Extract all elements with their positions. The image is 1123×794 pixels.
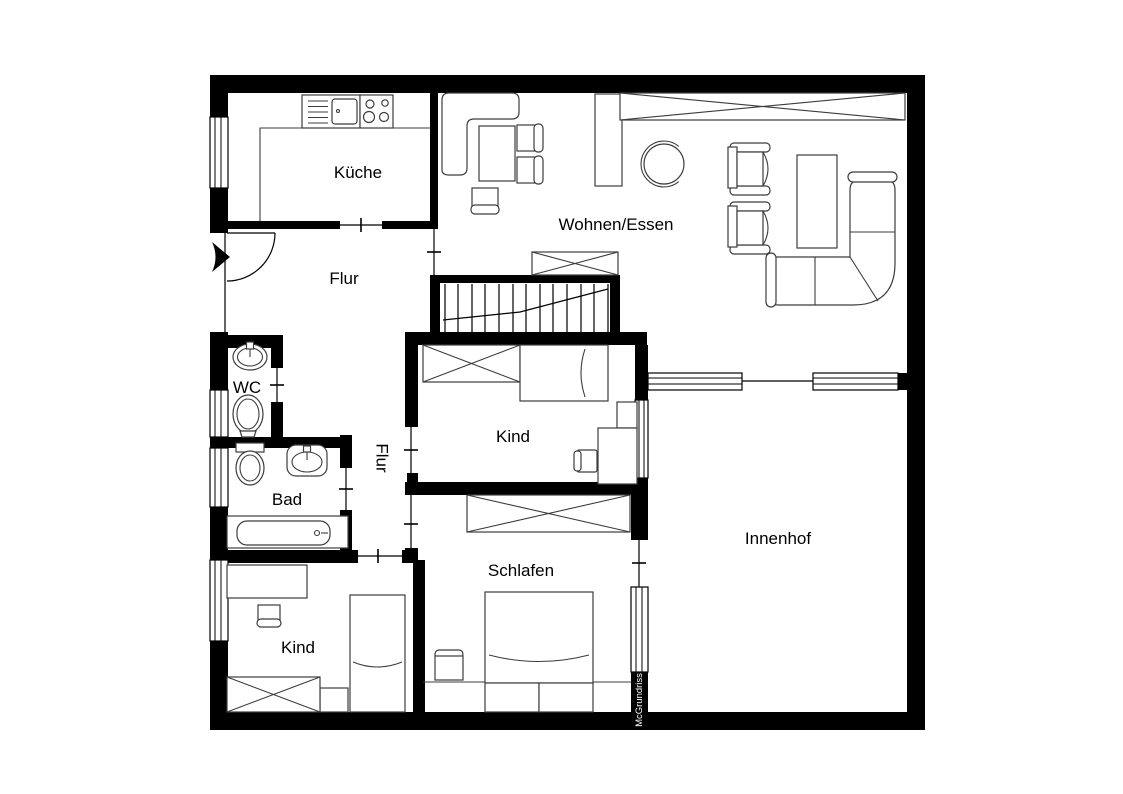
round-chair-icon xyxy=(641,141,684,187)
chair-icon xyxy=(574,450,597,472)
window xyxy=(210,390,228,437)
stove-icon xyxy=(360,95,393,128)
room-labels: Küche Wohnen/Essen Flur WC Bad Flur Kind… xyxy=(233,163,812,657)
wardrobe-icon xyxy=(467,495,630,532)
room-label-wc: WC xyxy=(233,378,261,397)
stairs-icon xyxy=(443,284,608,332)
wohnen-furniture xyxy=(442,93,905,307)
room-label-schlafen: Schlafen xyxy=(488,561,554,580)
desk-icon xyxy=(227,565,307,598)
watermark: McGrundriss xyxy=(631,672,648,728)
room-label-bad: Bad xyxy=(272,490,302,509)
room-label-wohnen-essen: Wohnen/Essen xyxy=(559,215,674,234)
window xyxy=(210,560,228,641)
wardrobe-icon xyxy=(227,677,320,712)
bed-icon xyxy=(520,345,608,401)
floor-plan-page: Küche Wohnen/Essen Flur WC Bad Flur Kind… xyxy=(0,0,1123,794)
nightstand-icon xyxy=(320,688,348,712)
sink-icon xyxy=(302,95,360,128)
toilet-icon xyxy=(233,395,263,437)
nightstand-icon xyxy=(617,402,637,428)
room-label-innenhof: Innenhof xyxy=(745,529,811,548)
dining-table-icon xyxy=(479,126,515,181)
room-label-kind-top: Kind xyxy=(496,427,530,446)
room-label-kueche: Küche xyxy=(334,163,382,182)
chair-icon xyxy=(471,188,499,214)
desk-icon xyxy=(598,428,637,484)
armchair-icon xyxy=(728,143,770,195)
entrance-door-arc xyxy=(227,233,275,281)
window xyxy=(210,448,228,507)
cabinet-icon xyxy=(595,94,622,186)
entrance xyxy=(212,233,275,281)
kueche-furniture xyxy=(260,95,430,221)
chair-icon xyxy=(257,605,281,627)
room-label-kind-bottom: Kind xyxy=(281,638,315,657)
armchair-icon xyxy=(728,202,770,254)
room-label-flur: Flur xyxy=(329,269,359,288)
bed-icon xyxy=(350,595,405,712)
toilet-icon xyxy=(236,443,264,485)
floor-plan: Küche Wohnen/Essen Flur WC Bad Flur Kind… xyxy=(0,0,1123,794)
double-bed-icon xyxy=(485,592,593,712)
wardrobe-icon xyxy=(423,345,520,382)
kind-bottom-furniture xyxy=(227,565,405,712)
washbasin-icon xyxy=(287,445,327,476)
stool-icon xyxy=(435,650,463,680)
window xyxy=(631,587,648,672)
bathtub-icon xyxy=(227,516,348,548)
window xyxy=(210,117,228,188)
chair-icon xyxy=(517,156,543,184)
chair-icon xyxy=(517,124,543,152)
kind-top-furniture xyxy=(423,345,637,484)
window xyxy=(648,373,742,390)
coffee-table-icon xyxy=(797,155,837,248)
sideboard-icon xyxy=(620,93,905,120)
window xyxy=(813,373,898,390)
watermark-label: McGrundriss xyxy=(634,673,645,727)
schlafen-furniture xyxy=(423,495,632,712)
wardrobe-icon xyxy=(532,252,618,275)
room-label-flur-vertical: Flur xyxy=(373,443,392,473)
entrance-arrow-icon xyxy=(212,242,230,272)
